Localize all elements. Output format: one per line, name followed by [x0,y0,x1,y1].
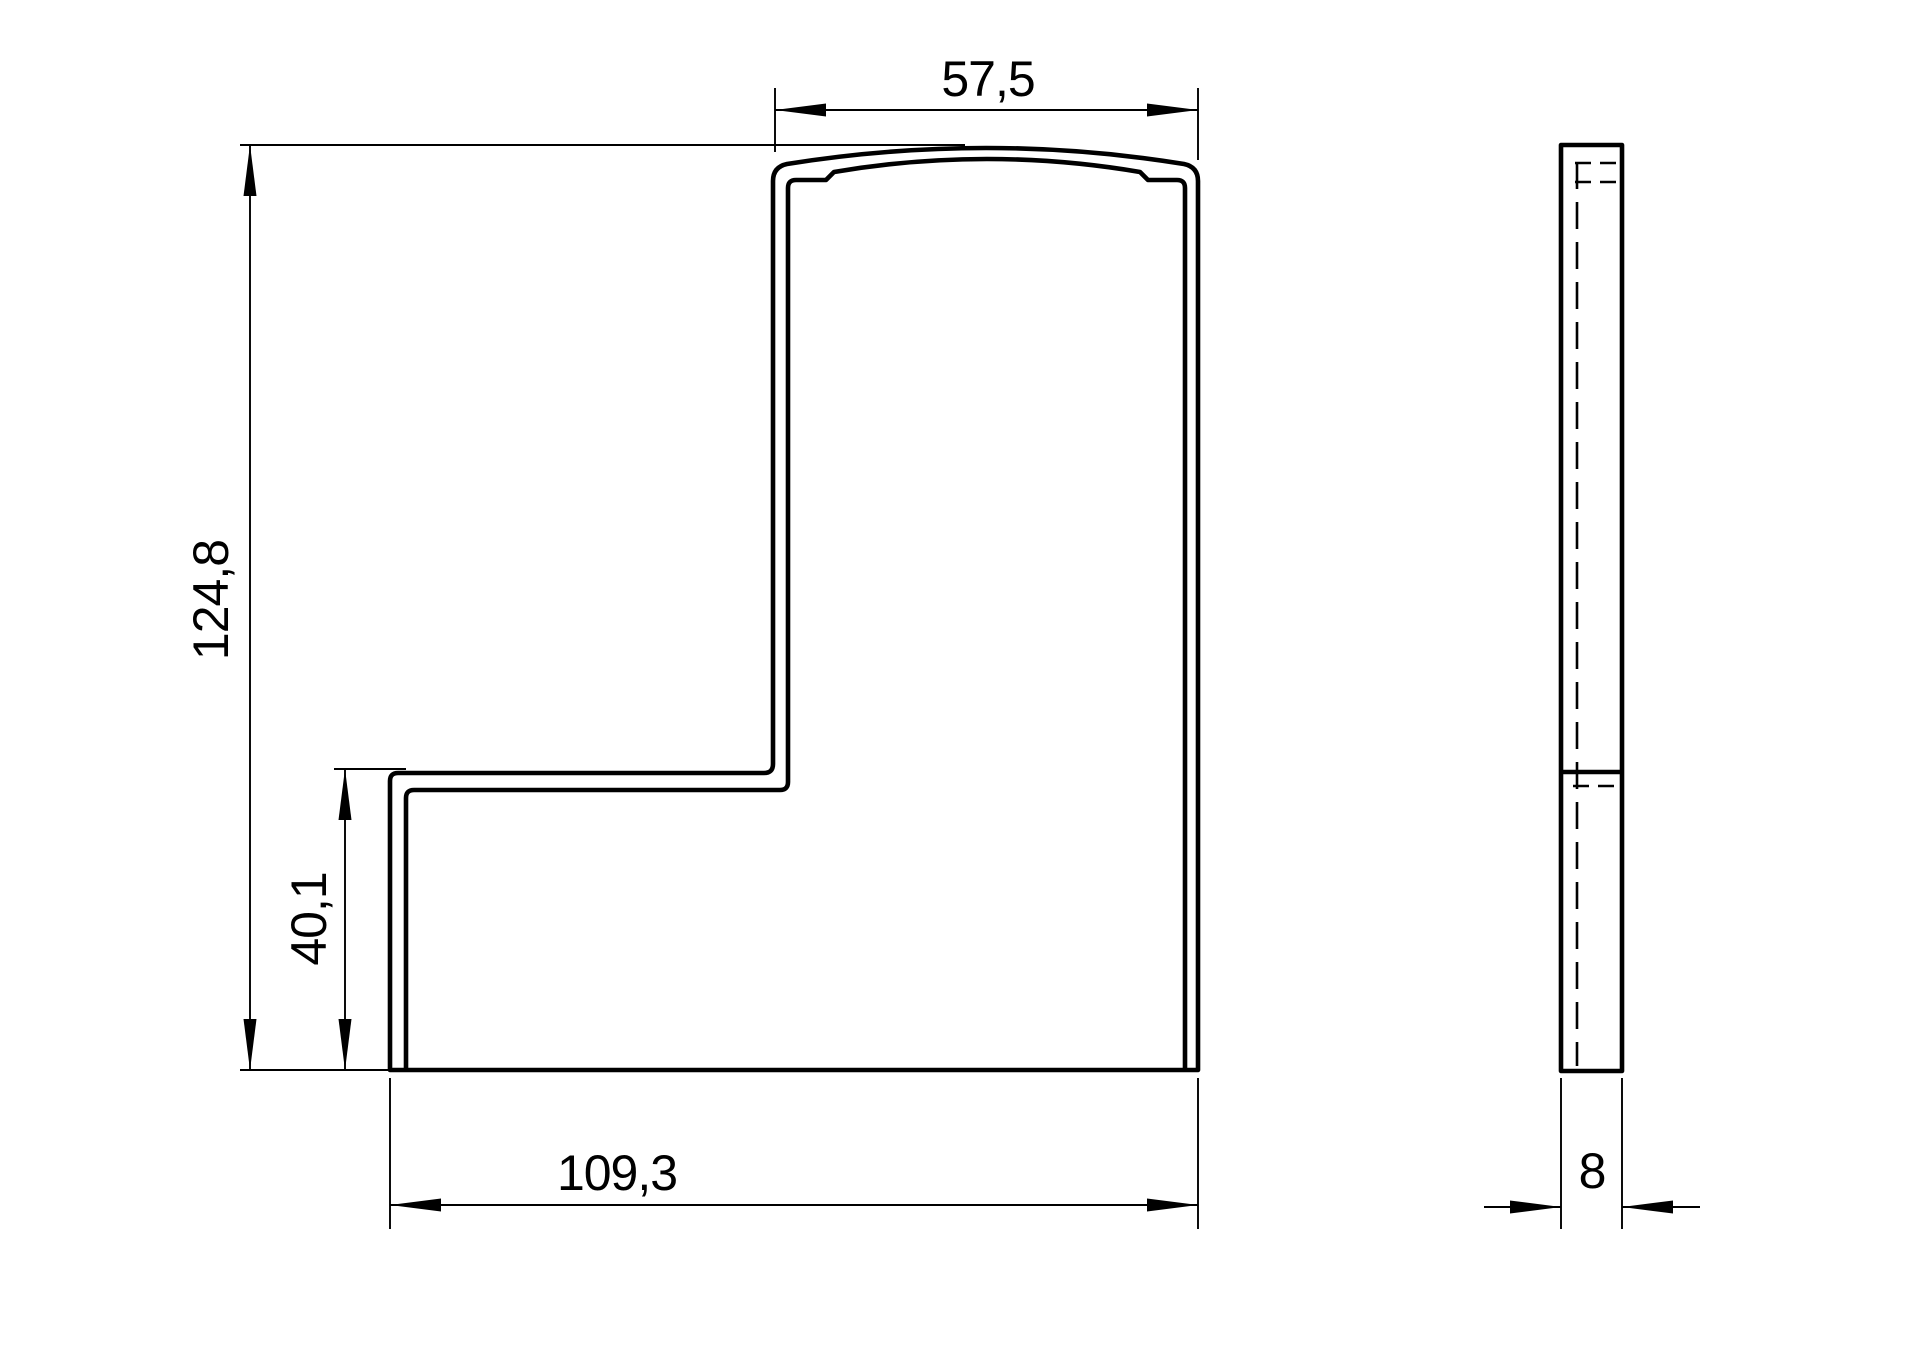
dim-overall-width: 109,3 [390,1078,1198,1229]
dim-overall-height-arrow-top [244,145,257,196]
front-inner-contour [406,159,1185,1070]
dim-overall-width-arrow-right [1147,1199,1198,1212]
front-outer-contour [390,148,1198,1070]
dim-step-height-arrow-bottom [339,1019,352,1070]
dim-step-height-label: 40,1 [281,872,337,965]
dim-overall-width-label: 109,3 [557,1145,677,1201]
dim-overall-height-label: 124,8 [183,540,239,660]
side-outline [1561,145,1622,1071]
dim-overall-width-arrow-left [390,1199,441,1212]
dim-overall-height-arrow-bottom [244,1019,257,1070]
dim-thickness-arrow-right [1622,1201,1673,1214]
drawing-canvas: 57,5 124,8 40,1 109,3 8 [0,0,1920,1358]
dim-top-width-label: 57,5 [941,51,1034,107]
front-view [390,148,1198,1070]
side-view [1561,145,1622,1071]
dim-top-width-arrow-right [1147,104,1198,117]
dim-thickness-label: 8 [1579,1143,1606,1199]
dim-top-width-arrow-left [775,104,826,117]
dim-top-width: 57,5 [775,51,1198,160]
technical-drawing: 57,5 124,8 40,1 109,3 8 [0,0,1920,1358]
dim-step-height-arrow-top [339,769,352,820]
dim-thickness-arrow-left [1510,1201,1561,1214]
dim-step-height: 40,1 [281,769,406,1070]
dim-thickness: 8 [1484,1078,1700,1229]
